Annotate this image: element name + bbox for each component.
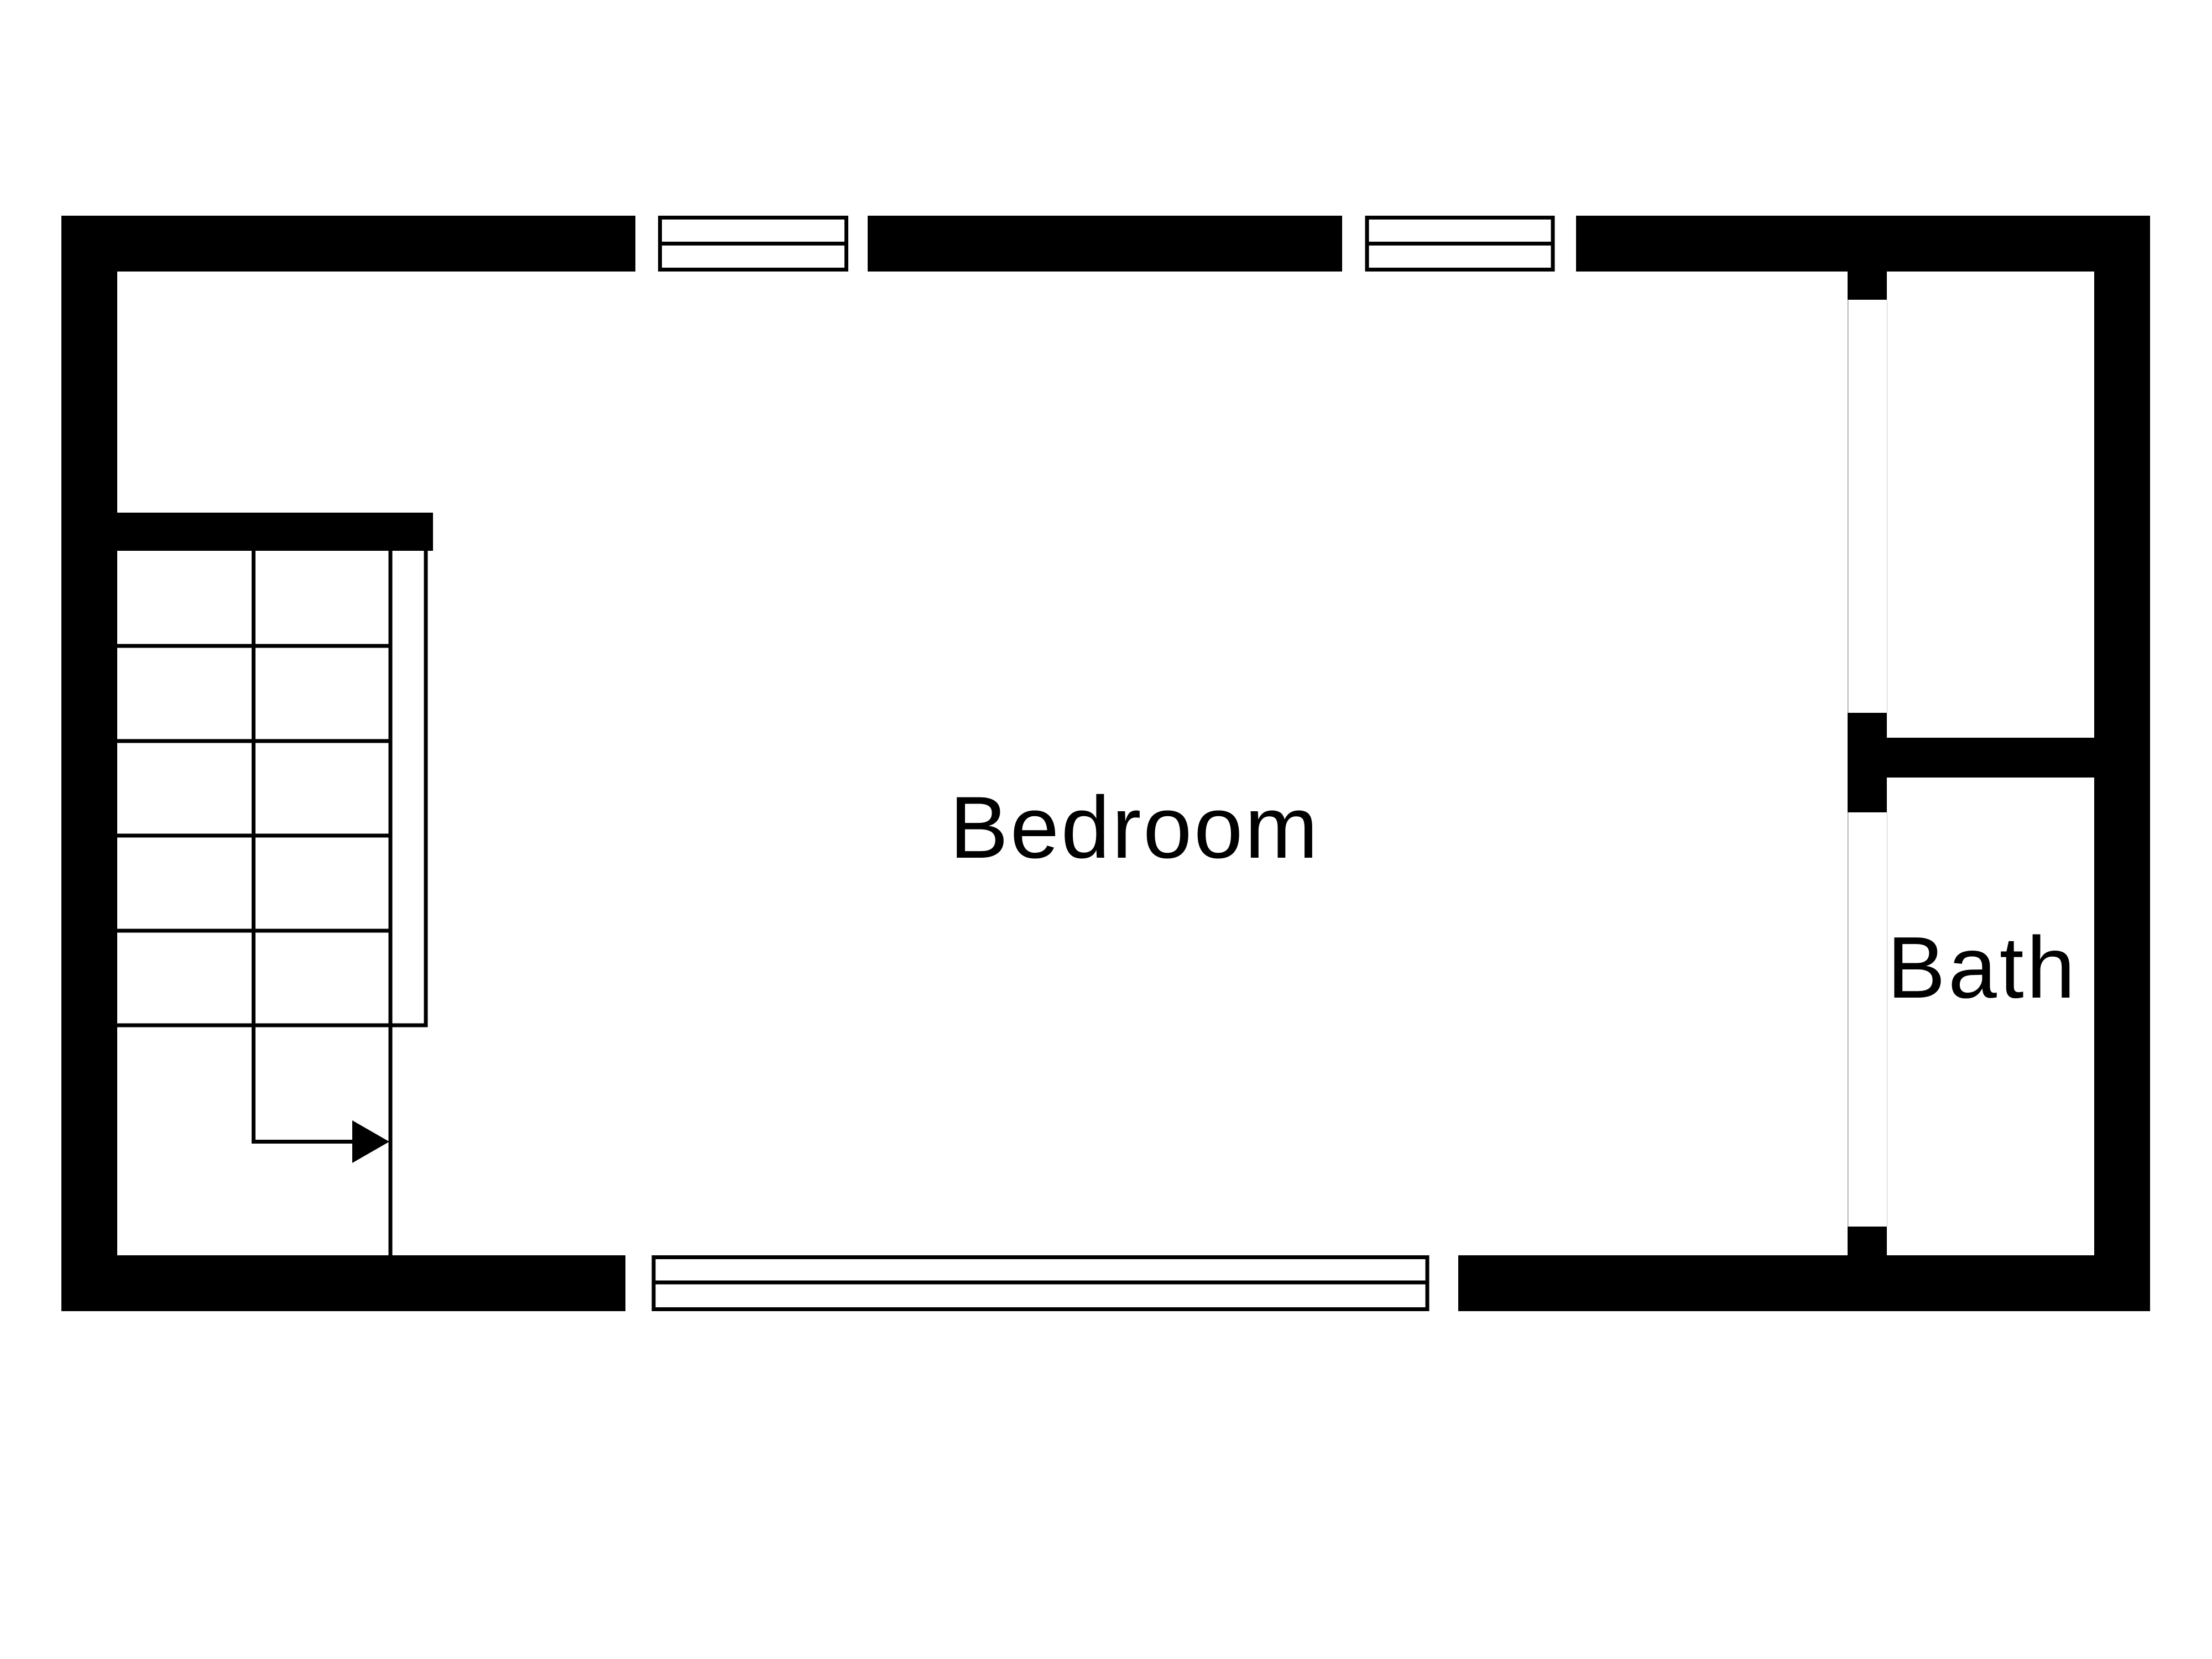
svg-text:Bath: Bath <box>1887 919 2078 1016</box>
svg-text:Bedroom: Bedroom <box>950 778 1320 877</box>
